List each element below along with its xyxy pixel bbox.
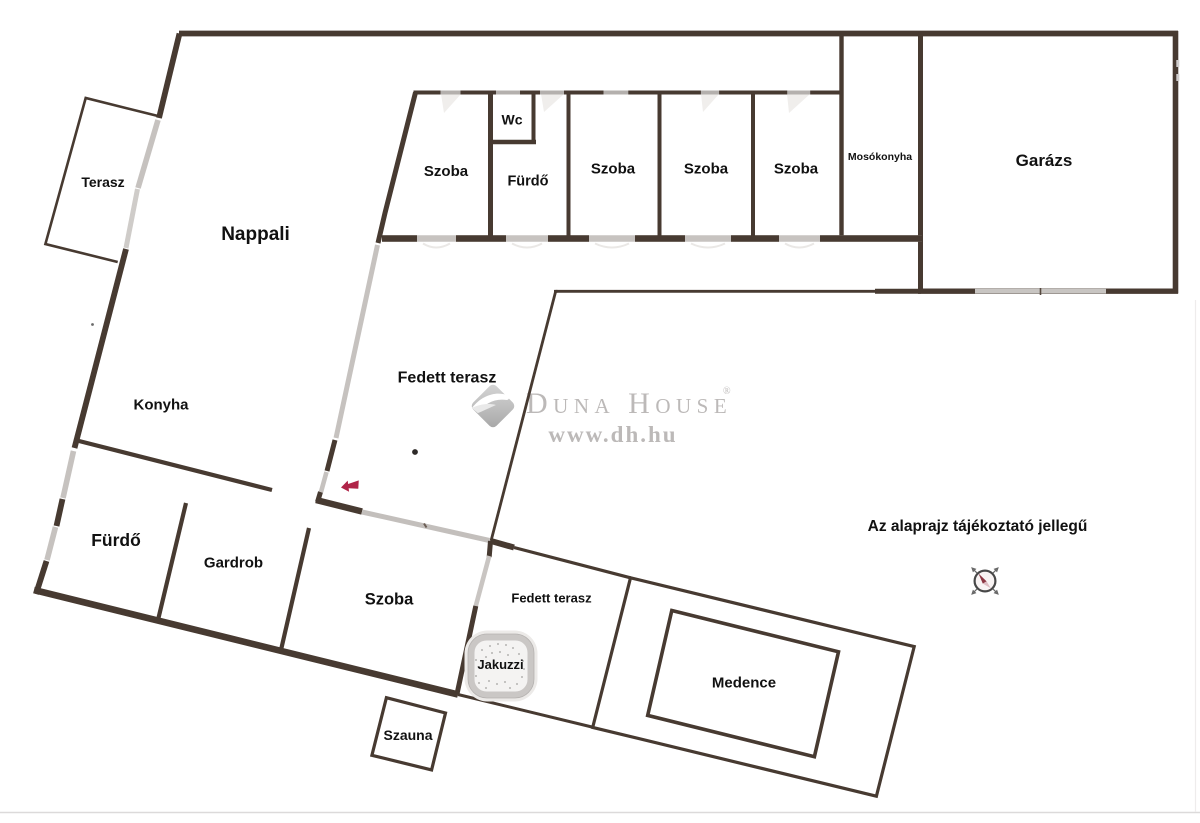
svg-text:Fürdő: Fürdő xyxy=(507,174,548,190)
svg-text:Duna House: Duna House xyxy=(526,387,732,420)
svg-text:Fedett terasz: Fedett terasz xyxy=(398,370,497,387)
svg-text:Nappali: Nappali xyxy=(221,224,290,245)
svg-text:Szoba: Szoba xyxy=(365,591,414,609)
svg-text:www.dh.hu: www.dh.hu xyxy=(548,422,677,447)
svg-text:Konyha: Konyha xyxy=(133,397,189,414)
svg-text:Szoba: Szoba xyxy=(774,161,819,178)
svg-text:Fedett terasz: Fedett terasz xyxy=(511,591,592,606)
svg-text:®: ® xyxy=(723,386,731,397)
svg-text:Garázs: Garázs xyxy=(1016,151,1073,170)
svg-text:Jakuzzi: Jakuzzi xyxy=(477,657,523,672)
svg-text:Terasz: Terasz xyxy=(81,174,124,190)
svg-text:Szoba: Szoba xyxy=(591,161,636,178)
svg-text:Wc: Wc xyxy=(502,112,523,128)
svg-text:Mosókonyha: Mosókonyha xyxy=(848,151,912,163)
svg-text:Az alaprajz tájékoztató jelleg: Az alaprajz tájékoztató jellegű xyxy=(868,518,1088,535)
svg-text:Szoba: Szoba xyxy=(424,163,469,180)
svg-text:Medence: Medence xyxy=(712,675,776,692)
svg-text:Szauna: Szauna xyxy=(383,727,432,743)
svg-text:Gardrob: Gardrob xyxy=(204,555,263,572)
svg-text:Szoba: Szoba xyxy=(684,161,729,178)
svg-text:Fürdő: Fürdő xyxy=(91,530,141,550)
